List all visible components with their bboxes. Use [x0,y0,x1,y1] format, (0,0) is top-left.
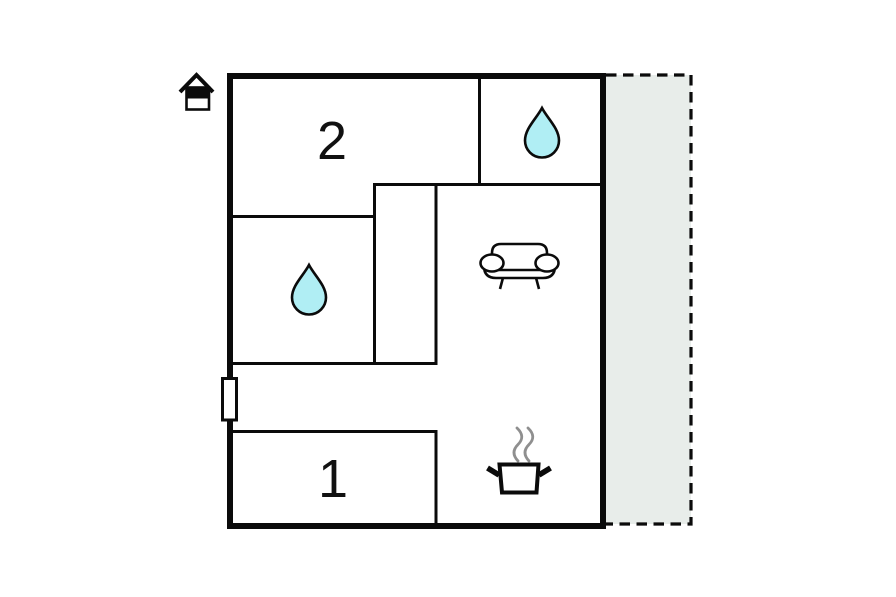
door-marker [223,379,237,421]
floor-plan-svg: 2 1 [0,0,896,597]
house-icon-roof-fill [187,88,210,99]
sofa-armrest-right [536,255,559,272]
terrace [606,75,691,524]
bedroom-1-label: 1 [318,449,348,509]
floor-plan-canvas: 2 1 [0,0,896,597]
house-icon [180,75,213,110]
terrace-fill [606,75,691,524]
bedroom-2-label: 2 [317,111,347,171]
sofa-armrest-left [481,255,504,272]
pot-body [500,465,539,493]
